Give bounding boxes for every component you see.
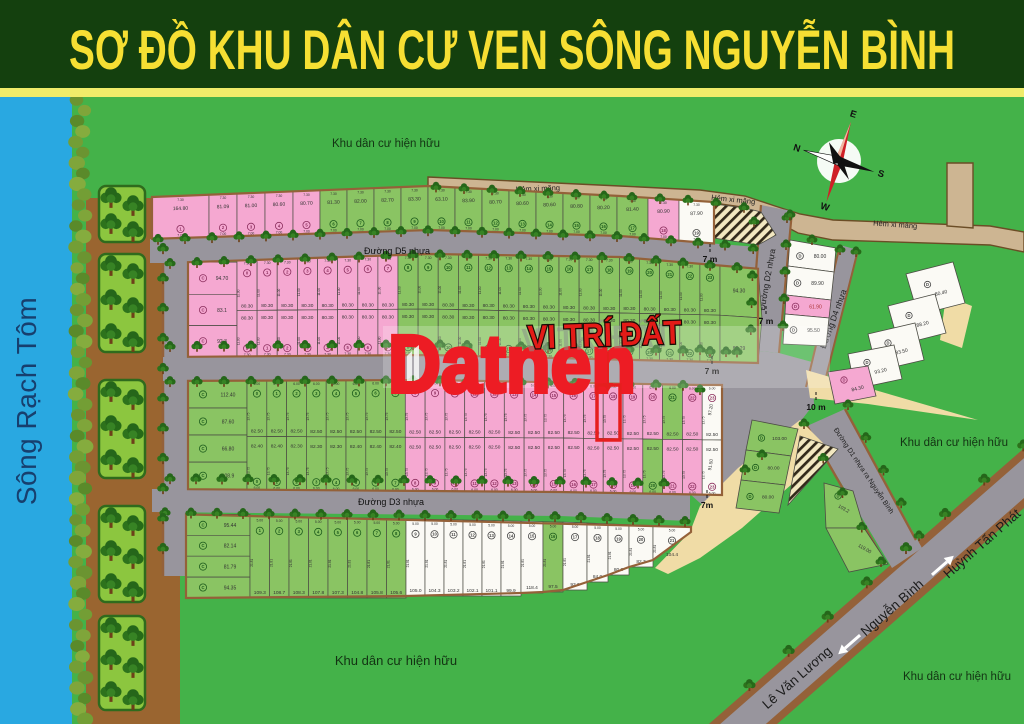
svg-text:C: C <box>201 522 204 527</box>
svg-text:82.50: 82.50 <box>647 431 659 437</box>
svg-text:61.90: 61.90 <box>809 305 822 311</box>
svg-text:15: 15 <box>547 266 552 271</box>
svg-text:13.75: 13.75 <box>306 467 310 475</box>
svg-text:82.50: 82.50 <box>330 429 342 435</box>
svg-text:80.00: 80.00 <box>814 254 827 260</box>
svg-text:13.75: 13.75 <box>365 412 369 420</box>
svg-text:104.4: 104.4 <box>666 552 678 558</box>
svg-text:20: 20 <box>650 483 655 488</box>
svg-text:21.81: 21.81 <box>521 559 525 567</box>
svg-text:82.50: 82.50 <box>370 429 382 435</box>
svg-text:11.00: 11.00 <box>337 337 341 345</box>
svg-text:D: D <box>798 254 801 259</box>
svg-text:13.75: 13.75 <box>425 412 429 420</box>
svg-text:5.00: 5.00 <box>276 519 283 523</box>
svg-text:21.81: 21.81 <box>309 559 313 567</box>
svg-text:82.50: 82.50 <box>587 445 599 451</box>
svg-text:11.00: 11.00 <box>257 289 261 297</box>
svg-text:19: 19 <box>616 536 621 541</box>
svg-text:7.30: 7.30 <box>248 195 255 199</box>
svg-text:87.60: 87.60 <box>222 420 235 426</box>
svg-text:11.00: 11.00 <box>538 287 542 295</box>
svg-text:11.00: 11.00 <box>237 337 241 345</box>
svg-text:D: D <box>748 494 751 499</box>
svg-text:C: C <box>201 339 204 344</box>
svg-text:118.4: 118.4 <box>526 585 538 591</box>
svg-text:13.75: 13.75 <box>583 469 587 477</box>
svg-text:21.81: 21.81 <box>587 554 591 562</box>
svg-text:80.30: 80.30 <box>422 302 434 308</box>
svg-text:12: 12 <box>492 481 497 486</box>
svg-text:13.75: 13.75 <box>286 412 290 420</box>
svg-text:13.75: 13.75 <box>247 467 251 475</box>
svg-text:5.00: 5.00 <box>508 524 515 528</box>
svg-text:7.30: 7.30 <box>666 263 673 267</box>
svg-text:103.2: 103.2 <box>447 588 459 594</box>
svg-text:C: C <box>201 392 204 397</box>
svg-text:13.75: 13.75 <box>365 468 369 476</box>
svg-text:13: 13 <box>506 266 511 271</box>
svg-text:13.75: 13.75 <box>464 468 468 476</box>
svg-text:19: 19 <box>627 268 632 273</box>
svg-text:82.14: 82.14 <box>224 544 237 550</box>
svg-text:5.00: 5.00 <box>594 526 601 530</box>
svg-text:13.75: 13.75 <box>405 468 409 476</box>
svg-text:13.75: 13.75 <box>346 467 350 475</box>
svg-text:21.81: 21.81 <box>543 559 547 567</box>
svg-text:82.50: 82.50 <box>508 445 520 451</box>
svg-text:108.3: 108.3 <box>293 590 305 596</box>
svg-text:5.00: 5.00 <box>550 525 557 529</box>
svg-text:13.75: 13.75 <box>484 468 488 476</box>
svg-text:82.50: 82.50 <box>310 429 322 435</box>
svg-text:80.30: 80.30 <box>462 303 474 309</box>
svg-text:D: D <box>842 378 845 383</box>
svg-text:80.80: 80.80 <box>570 203 583 209</box>
svg-text:16: 16 <box>601 224 606 229</box>
svg-text:80.30: 80.30 <box>523 304 535 310</box>
svg-text:83.1: 83.1 <box>217 308 227 314</box>
svg-text:80.30: 80.30 <box>322 303 334 309</box>
svg-text:80.30: 80.30 <box>603 306 615 312</box>
svg-text:21.81: 21.81 <box>629 548 633 556</box>
svg-text:21: 21 <box>670 395 675 400</box>
svg-text:7.30: 7.30 <box>264 261 271 265</box>
svg-text:82.50: 82.50 <box>429 429 441 435</box>
svg-text:5.00: 5.00 <box>412 522 419 526</box>
svg-text:14: 14 <box>526 266 531 271</box>
svg-text:Khu dân cư hiện hữu: Khu dân cư hiện hữu <box>903 671 1011 683</box>
svg-text:VI TRÍ ĐẤT: VI TRÍ ĐẤT <box>527 313 682 355</box>
svg-text:89.90: 89.90 <box>811 281 824 287</box>
svg-text:82.50: 82.50 <box>666 446 678 452</box>
svg-text:21.81: 21.81 <box>250 559 254 567</box>
svg-text:82.70: 82.70 <box>381 197 394 203</box>
svg-text:103.00: 103.00 <box>772 436 787 442</box>
svg-text:13.75: 13.75 <box>543 469 547 477</box>
svg-text:22: 22 <box>690 484 695 489</box>
svg-text:63.10: 63.10 <box>435 196 448 202</box>
svg-text:C: C <box>201 473 204 478</box>
svg-text:13.75: 13.75 <box>266 467 270 475</box>
svg-text:13.75: 13.75 <box>603 415 607 423</box>
svg-text:C: C <box>201 543 204 548</box>
svg-text:7.30: 7.30 <box>177 198 184 202</box>
svg-text:Khu dân cư hiện hữu: Khu dân cư hiện hữu <box>335 653 457 668</box>
svg-text:7.30: 7.30 <box>330 192 337 196</box>
svg-text:14: 14 <box>509 533 514 538</box>
svg-text:80.30: 80.30 <box>301 315 313 321</box>
svg-text:81.00: 81.00 <box>245 203 258 209</box>
svg-text:D: D <box>796 281 799 286</box>
svg-text:D: D <box>794 304 797 309</box>
svg-text:7.30: 7.30 <box>384 190 391 194</box>
svg-text:5.00: 5.00 <box>669 529 676 533</box>
svg-text:C: C <box>201 276 204 281</box>
svg-text:12: 12 <box>470 533 475 538</box>
svg-text:21.81: 21.81 <box>463 560 467 568</box>
svg-text:7.30: 7.30 <box>284 260 291 264</box>
svg-text:11.00: 11.00 <box>559 288 563 296</box>
svg-text:11.00: 11.00 <box>478 286 482 294</box>
svg-text:80.60: 80.60 <box>516 201 529 207</box>
svg-text:21.81: 21.81 <box>425 559 429 567</box>
svg-text:104.8: 104.8 <box>351 590 363 596</box>
svg-text:20: 20 <box>639 537 644 542</box>
svg-text:13.75: 13.75 <box>346 412 350 420</box>
svg-text:82.50: 82.50 <box>686 432 698 438</box>
svg-text:82.30: 82.30 <box>310 444 322 450</box>
svg-text:13.75: 13.75 <box>543 414 547 422</box>
svg-text:21.81: 21.81 <box>367 560 371 568</box>
svg-text:80.90: 80.90 <box>657 209 670 215</box>
svg-text:13.75: 13.75 <box>642 415 646 423</box>
svg-text:7.30: 7.30 <box>425 256 432 260</box>
svg-text:16: 16 <box>567 267 572 272</box>
svg-text:82.50: 82.50 <box>409 444 421 450</box>
svg-text:82.50: 82.50 <box>548 430 560 436</box>
svg-text:21.81: 21.81 <box>653 545 657 553</box>
svg-text:82.50: 82.50 <box>548 445 560 451</box>
svg-text:82.50: 82.50 <box>647 446 659 452</box>
svg-text:21.81: 21.81 <box>608 551 612 559</box>
svg-text:82.50: 82.50 <box>429 444 441 450</box>
svg-text:82.30: 82.30 <box>330 444 342 450</box>
svg-text:D: D <box>886 341 889 346</box>
svg-text:7 m: 7 m <box>759 316 774 326</box>
svg-text:5.00: 5.00 <box>393 522 400 526</box>
svg-text:7.30: 7.30 <box>303 193 310 197</box>
svg-text:22: 22 <box>690 395 695 400</box>
svg-text:12: 12 <box>493 221 498 226</box>
svg-text:7.30: 7.30 <box>505 257 512 261</box>
svg-text:80.30: 80.30 <box>322 315 334 321</box>
svg-text:80.30: 80.30 <box>281 303 293 309</box>
svg-text:107.3: 107.3 <box>332 590 344 596</box>
svg-text:21: 21 <box>670 484 675 489</box>
svg-text:112.40: 112.40 <box>221 392 236 398</box>
svg-text:82.50: 82.50 <box>488 430 500 436</box>
svg-text:80.30: 80.30 <box>503 304 515 310</box>
svg-text:C: C <box>201 585 204 590</box>
svg-text:17: 17 <box>630 226 635 231</box>
svg-text:80.30: 80.30 <box>402 302 414 308</box>
svg-text:80.30: 80.30 <box>704 308 716 314</box>
svg-text:C: C <box>201 564 204 569</box>
svg-text:10: 10 <box>446 265 451 270</box>
svg-text:80.30: 80.30 <box>261 315 273 321</box>
svg-text:21.81: 21.81 <box>289 559 293 567</box>
svg-text:21.81: 21.81 <box>406 559 410 567</box>
svg-text:7.30: 7.30 <box>693 203 700 207</box>
svg-text:17: 17 <box>591 482 596 487</box>
svg-text:11.00: 11.00 <box>438 286 442 294</box>
svg-text:7.30: 7.30 <box>220 196 227 200</box>
svg-text:19: 19 <box>694 231 699 236</box>
svg-text:11.00: 11.00 <box>619 289 623 297</box>
svg-text:82.30: 82.30 <box>290 444 302 450</box>
svg-text:C: C <box>201 308 204 313</box>
svg-text:82.50: 82.50 <box>449 445 461 451</box>
svg-text:82.40: 82.40 <box>251 444 263 450</box>
svg-text:18: 18 <box>607 267 612 272</box>
svg-text:20: 20 <box>647 270 652 275</box>
svg-text:80.60: 80.60 <box>273 202 286 208</box>
svg-text:5.00: 5.00 <box>334 520 341 524</box>
svg-text:82.50: 82.50 <box>607 431 619 437</box>
svg-text:12: 12 <box>486 265 491 270</box>
svg-text:80.30: 80.30 <box>583 305 595 311</box>
svg-text:11.00: 11.00 <box>377 287 381 295</box>
svg-text:82.50: 82.50 <box>469 445 481 451</box>
svg-text:80.30: 80.30 <box>623 306 635 312</box>
svg-text:83.90: 83.90 <box>462 198 475 204</box>
svg-text:80.30: 80.30 <box>664 307 676 313</box>
svg-text:5.00: 5.00 <box>431 522 438 526</box>
svg-text:13: 13 <box>520 221 525 226</box>
svg-text:104.3: 104.3 <box>428 588 440 594</box>
svg-text:13.75: 13.75 <box>682 471 686 479</box>
svg-text:7.30: 7.30 <box>364 258 371 262</box>
svg-text:6.00: 6.00 <box>313 382 320 386</box>
svg-text:13.75: 13.75 <box>425 468 429 476</box>
svg-text:16: 16 <box>571 482 576 487</box>
svg-text:D: D <box>865 360 868 365</box>
svg-text:83.30: 83.30 <box>408 196 421 202</box>
svg-text:13: 13 <box>489 533 494 538</box>
svg-text:82.50: 82.50 <box>706 432 718 438</box>
svg-text:80.30: 80.30 <box>342 315 354 321</box>
svg-text:11.00: 11.00 <box>518 287 522 295</box>
svg-text:5.00: 5.00 <box>572 525 579 529</box>
svg-text:11.00: 11.00 <box>297 288 301 296</box>
svg-text:7m: 7m <box>701 500 714 510</box>
svg-text:107.8: 107.8 <box>312 590 324 596</box>
svg-text:13.75: 13.75 <box>623 470 627 478</box>
svg-text:80.20: 80.20 <box>597 205 610 211</box>
svg-text:80.00: 80.00 <box>767 466 779 472</box>
svg-text:80.30: 80.30 <box>684 320 696 326</box>
svg-text:21.81: 21.81 <box>348 560 352 568</box>
svg-text:13.75: 13.75 <box>524 414 528 422</box>
svg-text:11.00: 11.00 <box>237 289 241 297</box>
svg-text:13.75: 13.75 <box>682 416 686 424</box>
svg-text:82.50: 82.50 <box>528 445 540 451</box>
svg-text:11.00: 11.00 <box>357 287 361 295</box>
svg-text:C: C <box>201 446 204 451</box>
svg-text:82.50: 82.50 <box>706 447 718 453</box>
svg-text:13.75: 13.75 <box>642 470 646 478</box>
svg-text:11.00: 11.00 <box>277 289 281 297</box>
svg-text:7.30: 7.30 <box>660 201 667 205</box>
svg-text:13.75: 13.75 <box>583 414 587 422</box>
svg-text:7 m: 7 m <box>703 254 718 264</box>
svg-text:95.44: 95.44 <box>224 523 237 529</box>
svg-text:11.00: 11.00 <box>418 286 422 294</box>
svg-text:80.30: 80.30 <box>241 303 253 309</box>
svg-text:11.00: 11.00 <box>317 337 321 345</box>
svg-text:13.75: 13.75 <box>266 412 270 420</box>
svg-text:20: 20 <box>650 395 655 400</box>
svg-text:5.00: 5.00 <box>488 523 495 527</box>
svg-text:11.00: 11.00 <box>377 336 381 344</box>
svg-text:13.75: 13.75 <box>385 468 389 476</box>
svg-text:13.75: 13.75 <box>504 413 508 421</box>
svg-text:21.81: 21.81 <box>501 560 505 568</box>
svg-text:17: 17 <box>573 535 578 540</box>
svg-text:13.75: 13.75 <box>444 468 448 476</box>
svg-text:105.8: 105.8 <box>371 590 383 596</box>
svg-text:11.00: 11.00 <box>398 286 402 294</box>
svg-text:80.30: 80.30 <box>644 307 656 313</box>
svg-text:D: D <box>926 282 929 287</box>
svg-text:80.30: 80.30 <box>362 315 374 321</box>
svg-text:97.5: 97.5 <box>548 584 558 590</box>
svg-text:21.81: 21.81 <box>270 559 274 567</box>
svg-text:13.75: 13.75 <box>326 412 330 420</box>
svg-text:82.50: 82.50 <box>508 430 520 436</box>
svg-text:13.75: 13.75 <box>286 467 290 475</box>
svg-text:82.50: 82.50 <box>350 429 362 435</box>
svg-text:16: 16 <box>551 534 556 539</box>
svg-text:18: 18 <box>595 536 600 541</box>
svg-text:13.75: 13.75 <box>464 413 468 421</box>
svg-text:82.50: 82.50 <box>568 445 580 451</box>
svg-text:C: C <box>201 419 204 424</box>
svg-text:10: 10 <box>439 219 444 224</box>
svg-text:7.30: 7.30 <box>525 257 532 261</box>
svg-text:Khu dân cư hiện hữu: Khu dân cư hiện hữu <box>900 437 1008 449</box>
svg-text:80.30: 80.30 <box>261 303 273 309</box>
svg-text:13.75: 13.75 <box>563 469 567 477</box>
svg-text:18: 18 <box>661 228 666 233</box>
svg-text:13.75: 13.75 <box>603 469 607 477</box>
svg-text:Đường D5 nhựa: Đường D5 nhựa <box>364 246 430 256</box>
svg-text:82.50: 82.50 <box>488 445 500 451</box>
svg-text:D: D <box>907 313 910 318</box>
svg-text:105.0: 105.0 <box>409 588 421 594</box>
svg-text:Đường D3 nhựa: Đường D3 nhựa <box>358 497 424 507</box>
svg-text:21.81: 21.81 <box>482 560 486 568</box>
svg-text:13.75: 13.75 <box>247 412 251 420</box>
svg-text:80.30: 80.30 <box>543 305 555 311</box>
svg-text:82.00: 82.00 <box>354 198 367 204</box>
svg-text:5.00: 5.00 <box>256 519 263 523</box>
svg-text:94.30: 94.30 <box>733 288 746 294</box>
svg-text:22: 22 <box>687 274 692 279</box>
svg-text:82.50: 82.50 <box>568 430 580 436</box>
svg-text:82.50: 82.50 <box>686 447 698 453</box>
svg-text:80.30: 80.30 <box>382 302 394 308</box>
svg-text:82.50: 82.50 <box>666 431 678 437</box>
svg-text:80.30: 80.30 <box>241 315 253 321</box>
svg-text:6.00: 6.00 <box>293 382 300 386</box>
svg-text:14: 14 <box>547 222 552 227</box>
svg-text:21.81: 21.81 <box>563 558 567 566</box>
svg-text:7.30: 7.30 <box>445 256 452 260</box>
svg-text:82.50: 82.50 <box>251 429 263 435</box>
svg-text:13.75: 13.75 <box>563 414 567 422</box>
svg-text:82.50: 82.50 <box>389 429 401 435</box>
svg-text:6.00: 6.00 <box>372 382 379 386</box>
svg-text:13.75: 13.75 <box>504 468 508 476</box>
svg-text:21: 21 <box>670 538 675 543</box>
svg-text:82.50: 82.50 <box>409 429 421 435</box>
svg-text:7.30: 7.30 <box>411 189 418 193</box>
svg-text:11: 11 <box>451 532 456 537</box>
svg-text:11.00: 11.00 <box>699 293 703 301</box>
svg-text:80.30: 80.30 <box>362 303 374 309</box>
svg-text:94.35: 94.35 <box>224 586 237 592</box>
svg-text:7.30: 7.30 <box>344 258 351 262</box>
svg-text:5.00: 5.00 <box>373 521 380 525</box>
svg-text:11.00: 11.00 <box>458 286 462 294</box>
svg-text:80.30: 80.30 <box>281 315 293 321</box>
svg-text:82.50: 82.50 <box>528 430 540 436</box>
svg-text:21.81: 21.81 <box>387 560 391 568</box>
svg-text:80.30: 80.30 <box>704 320 716 326</box>
svg-text:11.00: 11.00 <box>317 288 321 296</box>
svg-text:13.75: 13.75 <box>662 416 666 424</box>
svg-text:80.30: 80.30 <box>442 302 454 308</box>
svg-text:5.00: 5.00 <box>638 528 645 532</box>
svg-text:80.70: 80.70 <box>300 201 313 207</box>
svg-text:80.30: 80.30 <box>684 308 696 314</box>
svg-text:D: D <box>760 436 763 441</box>
svg-text:15: 15 <box>530 534 535 539</box>
svg-text:7.30: 7.30 <box>357 191 364 195</box>
svg-text:82.50: 82.50 <box>607 446 619 452</box>
svg-text:7.30: 7.30 <box>276 194 283 198</box>
svg-text:80.30: 80.30 <box>342 303 354 309</box>
svg-text:21: 21 <box>667 272 672 277</box>
svg-text:81.79: 81.79 <box>224 565 237 571</box>
svg-text:82.50: 82.50 <box>469 430 481 436</box>
svg-text:80.70: 80.70 <box>489 199 502 205</box>
svg-text:82.50: 82.50 <box>627 446 639 452</box>
svg-text:11: 11 <box>466 220 471 225</box>
svg-text:82.40: 82.40 <box>370 444 382 450</box>
svg-text:5.00: 5.00 <box>529 524 536 528</box>
svg-text:5.00: 5.00 <box>354 521 361 525</box>
svg-text:Sông Rạch Tôm: Sông Rạch Tôm <box>11 297 42 505</box>
svg-text:81.30: 81.30 <box>327 200 340 206</box>
svg-text:81.09: 81.09 <box>217 204 230 210</box>
svg-text:82.50: 82.50 <box>271 429 283 435</box>
svg-text:13.75: 13.75 <box>484 413 488 421</box>
svg-text:13.75: 13.75 <box>444 413 448 421</box>
svg-text:13.75: 13.75 <box>405 412 409 420</box>
